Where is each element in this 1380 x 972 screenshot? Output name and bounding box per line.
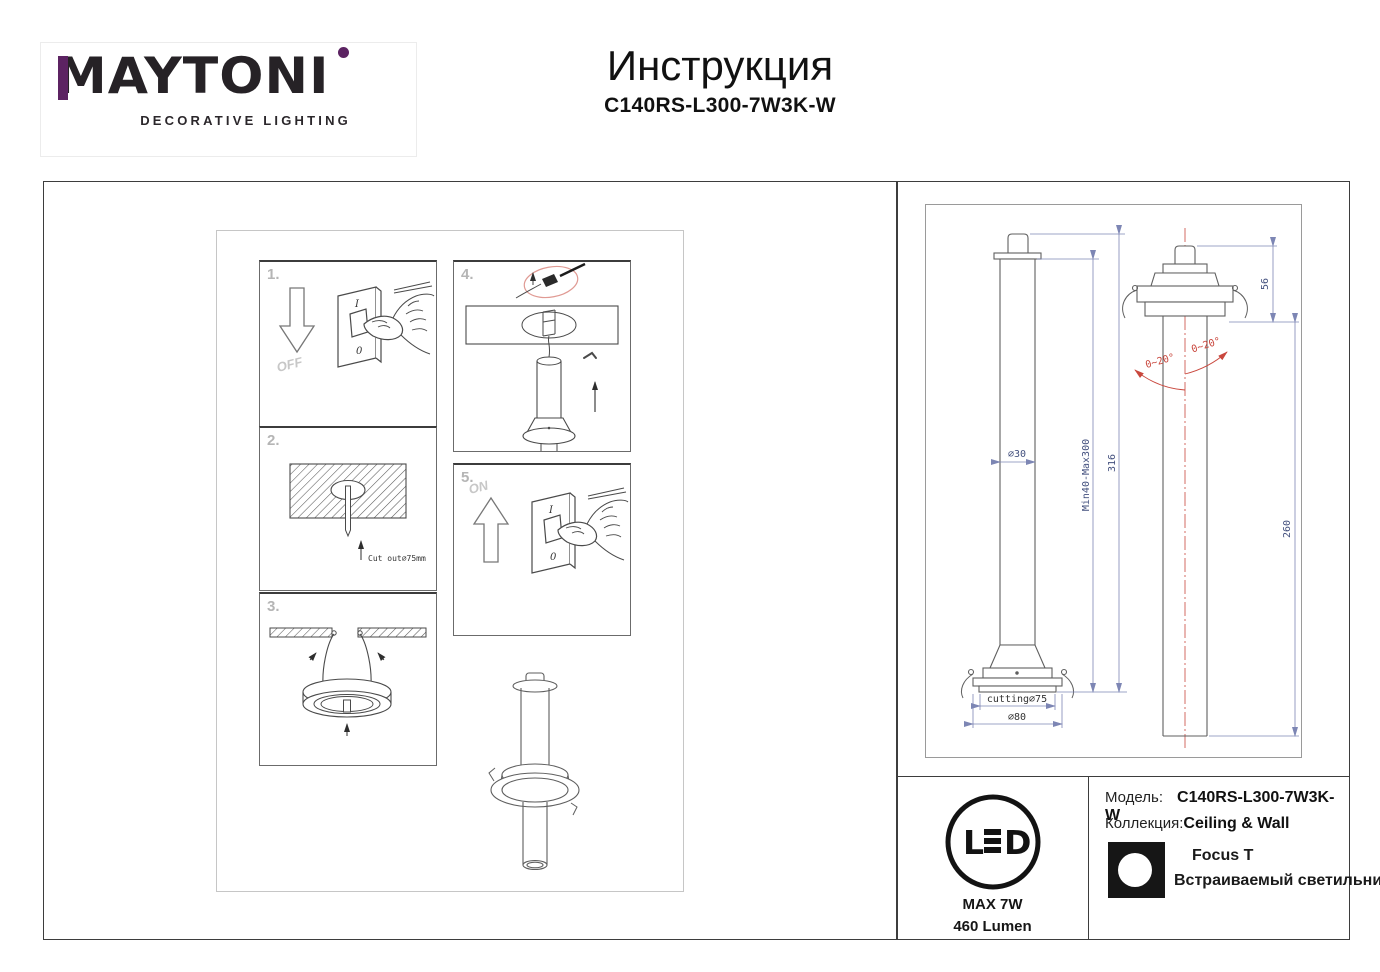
led-badge-icon: L D — [943, 792, 1043, 892]
brand-name: MAYTONI — [55, 51, 329, 101]
dim-tube-length: 260 — [1282, 520, 1293, 538]
product-thumbnail-light-icon — [1118, 853, 1152, 887]
brand-tagline: DECORATIVE LIGHTING — [55, 113, 351, 128]
step-number: 2. — [267, 432, 280, 449]
dim-cutout: cutting∅75 — [987, 694, 1047, 705]
model-label: Модель: — [1105, 789, 1163, 806]
dim-tube-diameter: ∅30 — [1008, 449, 1026, 460]
step-1-panel: I 0 OFF 1. — [259, 260, 437, 427]
collection-value: Ceiling & Wall — [1183, 815, 1289, 832]
dimension-drawing: ∅30 Min40-Max300 316 cutting∅75 ∅80 — [897, 182, 1349, 776]
step-3-panel: 3. — [259, 592, 437, 766]
brand-accent-stem — [58, 56, 68, 100]
assembled-fixture-drawing — [479, 669, 595, 895]
max-power: MAX 7W — [897, 896, 1088, 913]
step-number: 4. — [461, 266, 474, 283]
assembled-fixture-icon — [479, 669, 595, 895]
dim-flange-diameter: ∅80 — [1008, 712, 1026, 723]
instructions-box: I 0 OFF 1. Cut out∅75mm 2. — [43, 181, 898, 940]
lumen-output: 460 Lumen — [897, 918, 1088, 935]
page-header: Инструкция C140RS-L300-7W3K-W — [500, 44, 940, 118]
switch-on-illustration-icon: I 0 ON — [454, 465, 630, 635]
switch-off-mark: 0 — [356, 346, 363, 357]
dim-tilt-right: 0~20° — [1190, 336, 1222, 356]
dim-total-height: 316 — [1107, 454, 1118, 472]
step-number: 5. — [461, 469, 474, 486]
collection-row: Коллекция:Ceiling & Wall — [1105, 815, 1290, 833]
cutout-label: Cut out∅75mm — [368, 554, 426, 563]
step-5-panel: I 0 ON 5. — [453, 463, 631, 636]
led-letter-e-bars — [984, 829, 1001, 853]
spec-box: ∅30 Min40-Max300 316 cutting∅75 ∅80 — [896, 181, 1350, 940]
product-thumbnail — [1108, 842, 1165, 898]
page-title: Инструкция — [500, 44, 940, 88]
brand-accent-dot-icon — [338, 47, 349, 58]
dim-recess-height: 56 — [1260, 278, 1271, 290]
model-code: C140RS-L300-7W3K-W — [500, 94, 940, 118]
spring-mount-illustration-icon — [260, 594, 436, 765]
step-number: 3. — [267, 598, 280, 615]
dim-suspension-range: Min40-Max300 — [1081, 439, 1092, 511]
off-label: OFF — [275, 354, 305, 375]
model-info-cell: Модель:C140RS-L300-7W3K-W Коллекция:Ceil… — [1088, 776, 1349, 939]
series-name: Focus T — [1192, 847, 1253, 865]
product-type: Встраиваемый светильник — [1174, 872, 1380, 890]
dim-tilt-left: 0~20° — [1144, 352, 1176, 371]
maytoni-logo: MAYTONI DECORATIVE LIGHTING — [40, 42, 417, 157]
instructions-inner-frame: I 0 OFF 1. Cut out∅75mm 2. — [216, 230, 684, 892]
cutout-illustration-icon: Cut out∅75mm — [260, 428, 436, 590]
wiring-illustration-icon — [454, 262, 630, 451]
switch-off-mark: 0 — [550, 552, 557, 563]
step-2-panel: Cut out∅75mm 2. — [259, 426, 437, 591]
led-letter-d: D — [1004, 823, 1031, 862]
step-number: 1. — [267, 266, 280, 283]
led-letter-l: L — [963, 823, 984, 862]
collection-label: Коллекция: — [1105, 815, 1183, 832]
step-4-panel: 4. — [453, 260, 631, 452]
switch-off-illustration-icon: I 0 OFF — [260, 262, 436, 426]
led-badge-cell: L D MAX 7W 460 Lumen — [897, 776, 1088, 939]
